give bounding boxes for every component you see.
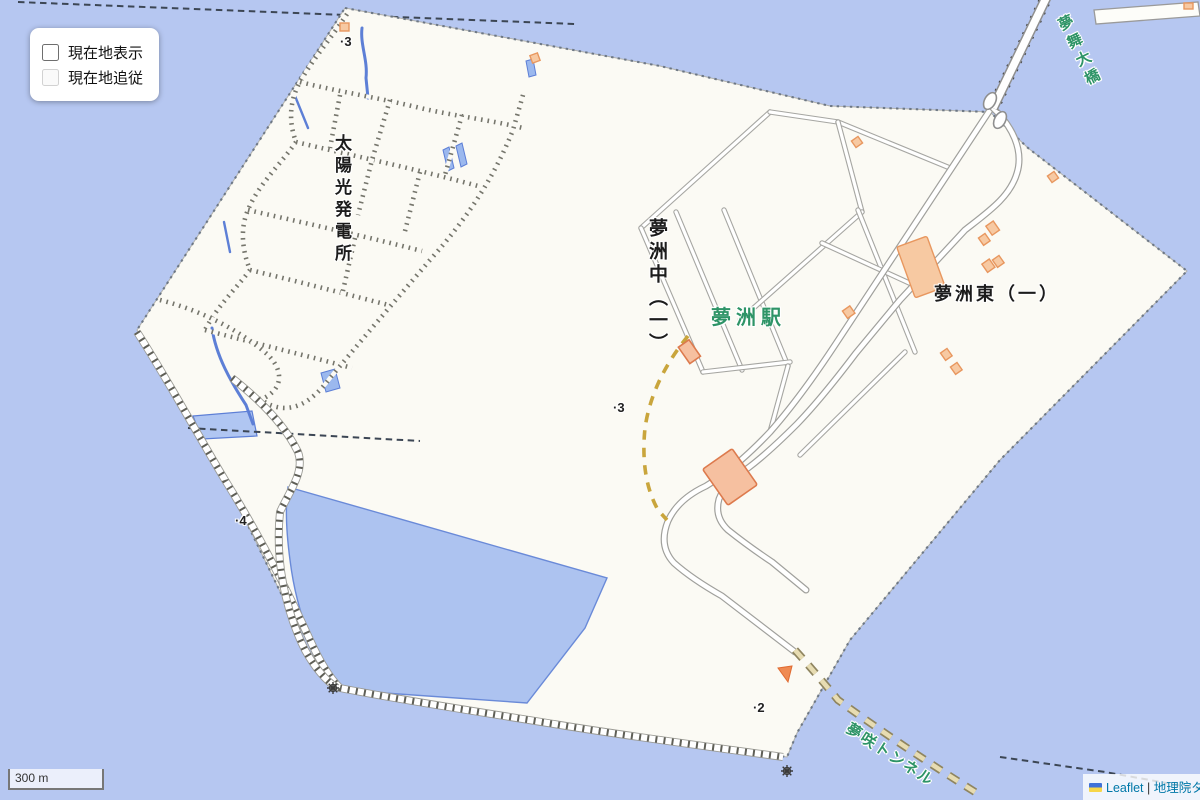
show-location-checkbox[interactable] [42,44,59,61]
label-solar-plant: 太陽光発電所 [329,134,354,266]
map-graphics [0,0,1200,800]
show-location-label[interactable]: 現在地表示 [68,42,143,63]
tiles-link[interactable]: 地理院タイル [1154,781,1200,795]
follow-location-label: 現在地追従 [68,67,143,88]
location-control-panel: 現在地表示 現在地追従 [30,28,159,101]
follow-location-checkbox [42,69,59,86]
map-canvas[interactable]: 太陽光発電所 夢洲中（一） 夢洲駅 夢洲東（一） 夢舞大橋 夢咲トンネル ·3 … [0,0,1200,800]
scale-bar: 300 m [8,769,104,790]
attribution: Leaflet | 地理院タイル [1083,774,1200,800]
label-station: 夢洲駅 [711,301,786,330]
spot-elevation: ·3 [613,400,625,415]
attribution-separator: | [1144,781,1154,795]
label-district-higashi: 夢洲東（一） [934,280,1060,306]
leaflet-link[interactable]: Leaflet [1106,781,1144,795]
spot-elevation: ·2 [753,700,765,715]
spot-elevation: ·4 [235,513,247,528]
spot-elevation: ·3 [340,34,352,49]
label-district-naka: 夢洲中（一） [643,218,670,356]
ukraine-flag-icon [1089,783,1102,792]
